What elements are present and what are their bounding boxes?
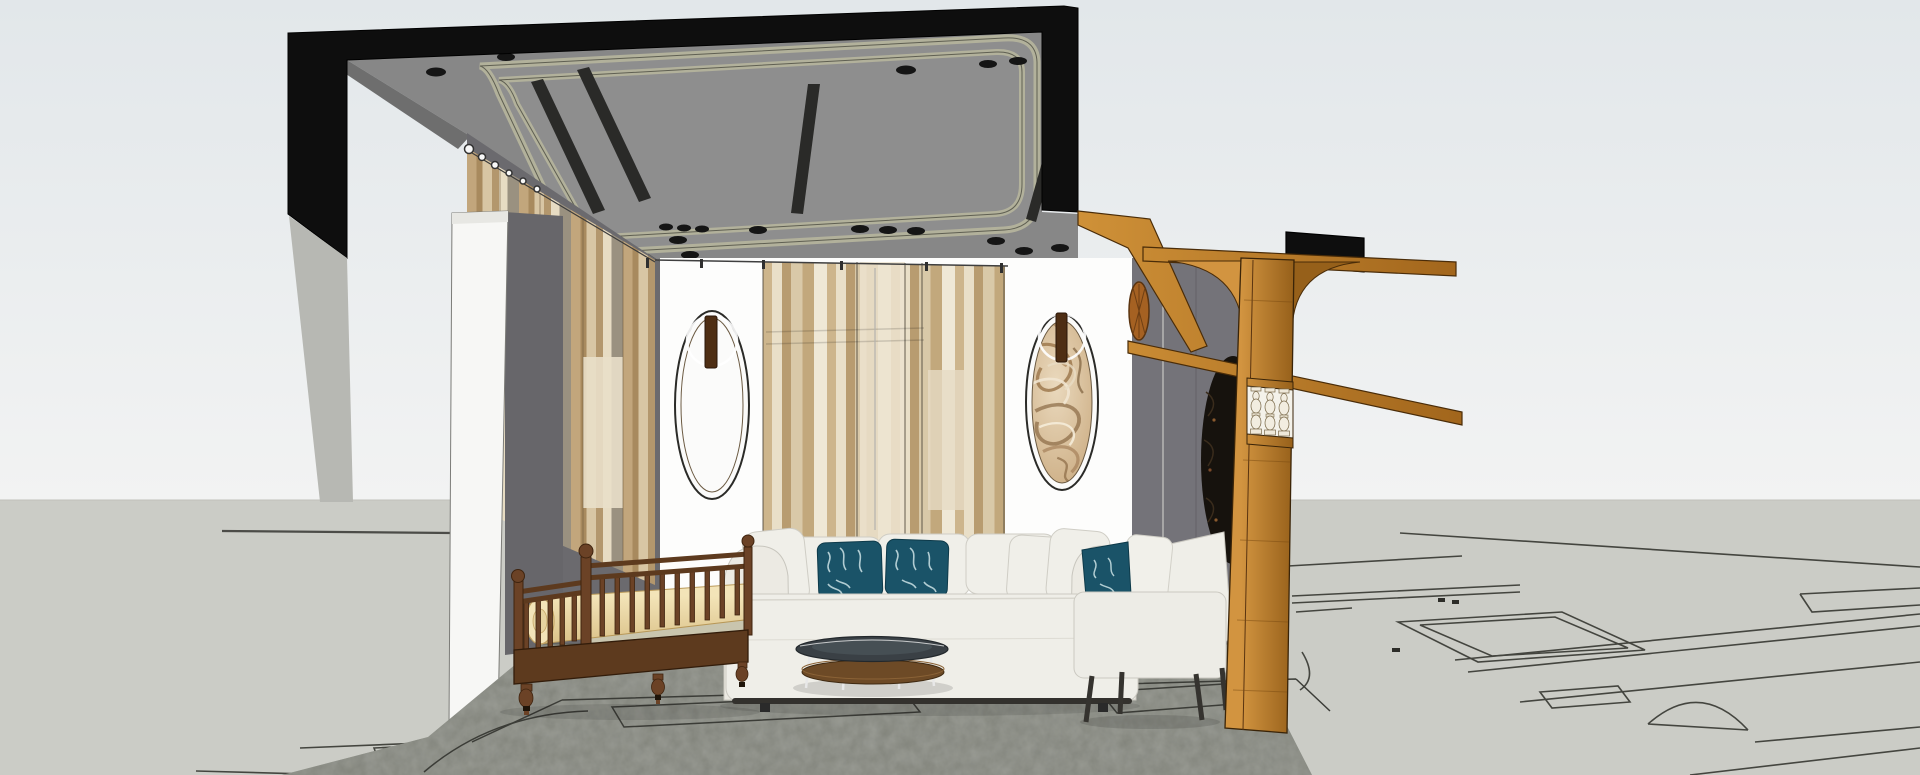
sconce-right[interactable] — [1056, 313, 1067, 362]
sconce-left[interactable] — [705, 316, 717, 368]
sofa-base-shadow — [732, 698, 1132, 704]
curtain-light-panel — [583, 357, 623, 508]
curtain-light-panel-right — [928, 370, 964, 510]
armchair-seat — [1074, 592, 1226, 678]
coffee-table[interactable]: Oval two-tier coffee table — [793, 637, 953, 698]
sheer-panel — [860, 262, 905, 547]
oval-panel-right[interactable]: Oval onyx wall niche with sconce — [1026, 313, 1098, 490]
pillar-top-shade — [452, 211, 508, 224]
wall-disc-vent[interactable] — [1129, 282, 1149, 340]
balusters — [1251, 387, 1290, 436]
left-pillar[interactable] — [449, 211, 508, 729]
table-shelf — [802, 660, 944, 684]
3d-viewport[interactable]: CAD floor plan linework on ground plane … — [0, 0, 1920, 775]
